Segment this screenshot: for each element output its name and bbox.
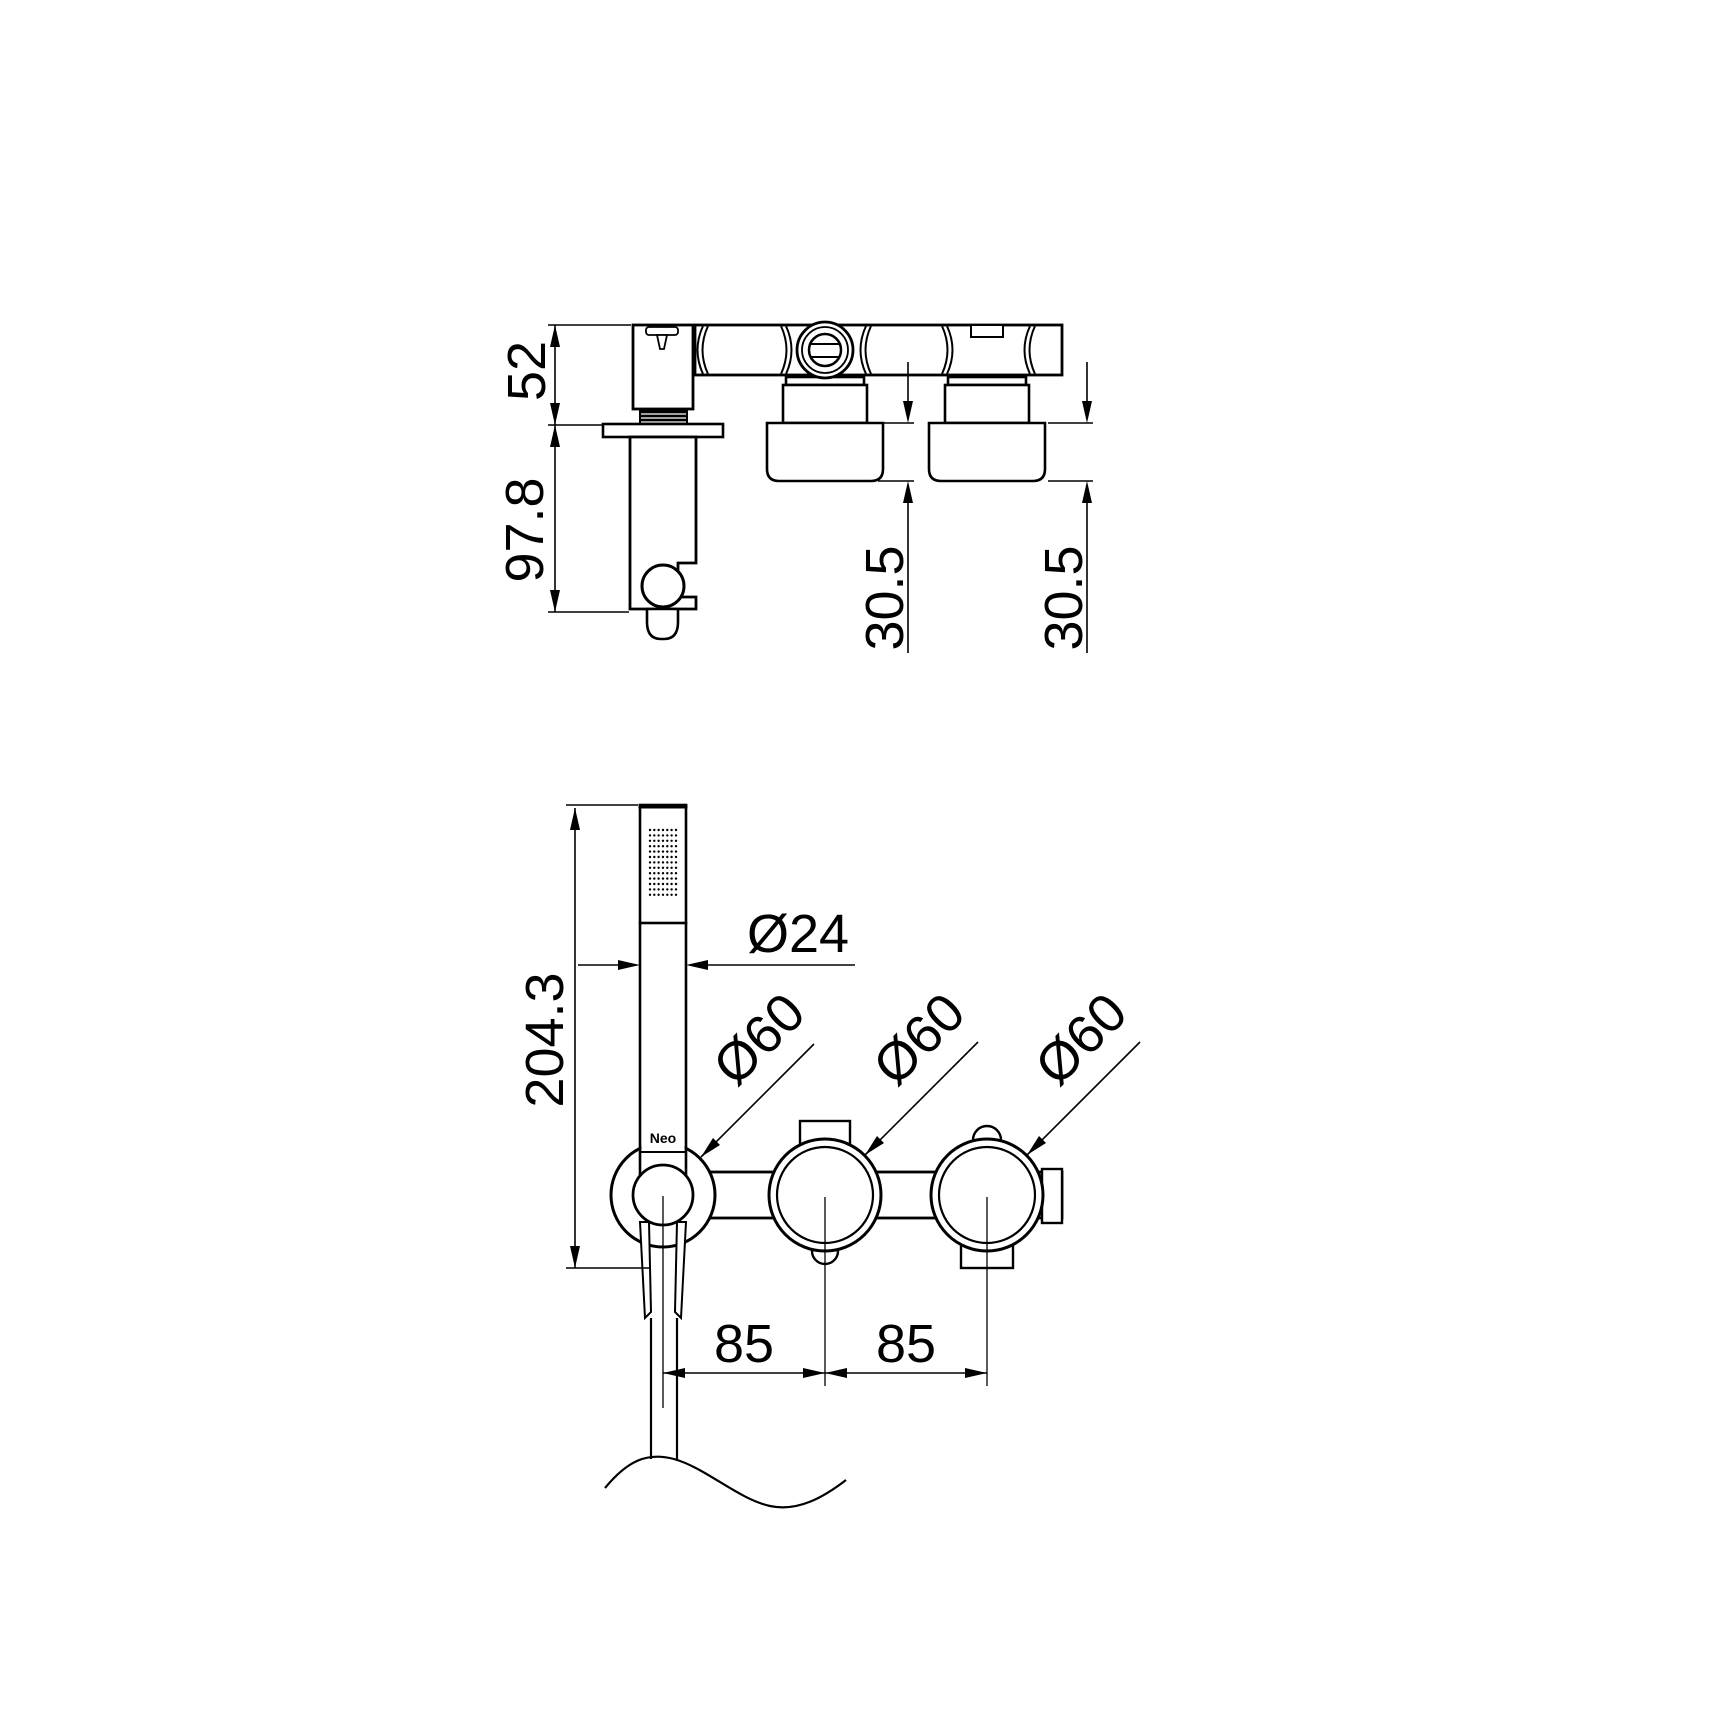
valve1-profile [767,377,883,481]
dim-label-30-5-left: 30.5 [855,545,915,650]
valve2-profile [929,377,1045,481]
technical-drawing-page: 52 97.8 30.5 30.5 [0,0,1733,1733]
dim-label-85-right: 85 [876,1314,936,1374]
dim-label-85-left: 85 [714,1314,774,1374]
dim-label-d60-holder: Ø60 [702,982,817,1097]
dim-label-30-5-right: 30.5 [1034,545,1094,650]
wand-head [640,805,686,923]
dim-label-d60-middle: Ø60 [862,982,977,1097]
screw-port [797,322,853,378]
dim-label-d60-right: Ø60 [1024,982,1139,1097]
outlet-tab [647,609,678,639]
brand-label: Neo [650,1130,676,1146]
dim-52-97-8 [548,325,631,612]
dim-label-204-3: 204.3 [515,972,575,1107]
side-view: 52 97.8 30.5 30.5 [495,322,1094,653]
hose-break-wave [605,1457,846,1508]
dim-label-d24: Ø24 [747,904,849,964]
front-view: Neo 204.3 [515,805,1140,1507]
mixer-dimension-drawing: 52 97.8 30.5 30.5 [0,0,1733,1733]
bar-end-cap [1042,1169,1062,1223]
wall-flange-profile [603,424,723,437]
dim-label-97-8: 97.8 [495,477,555,582]
threaded-joint [639,409,688,425]
holder-pivot [642,565,684,607]
bar-profile [695,325,1062,375]
center-lines [663,1196,987,1408]
valve2-top-notch [971,325,1003,337]
handshower-wand: Neo [639,805,688,1178]
dim-label-52: 52 [497,341,557,401]
